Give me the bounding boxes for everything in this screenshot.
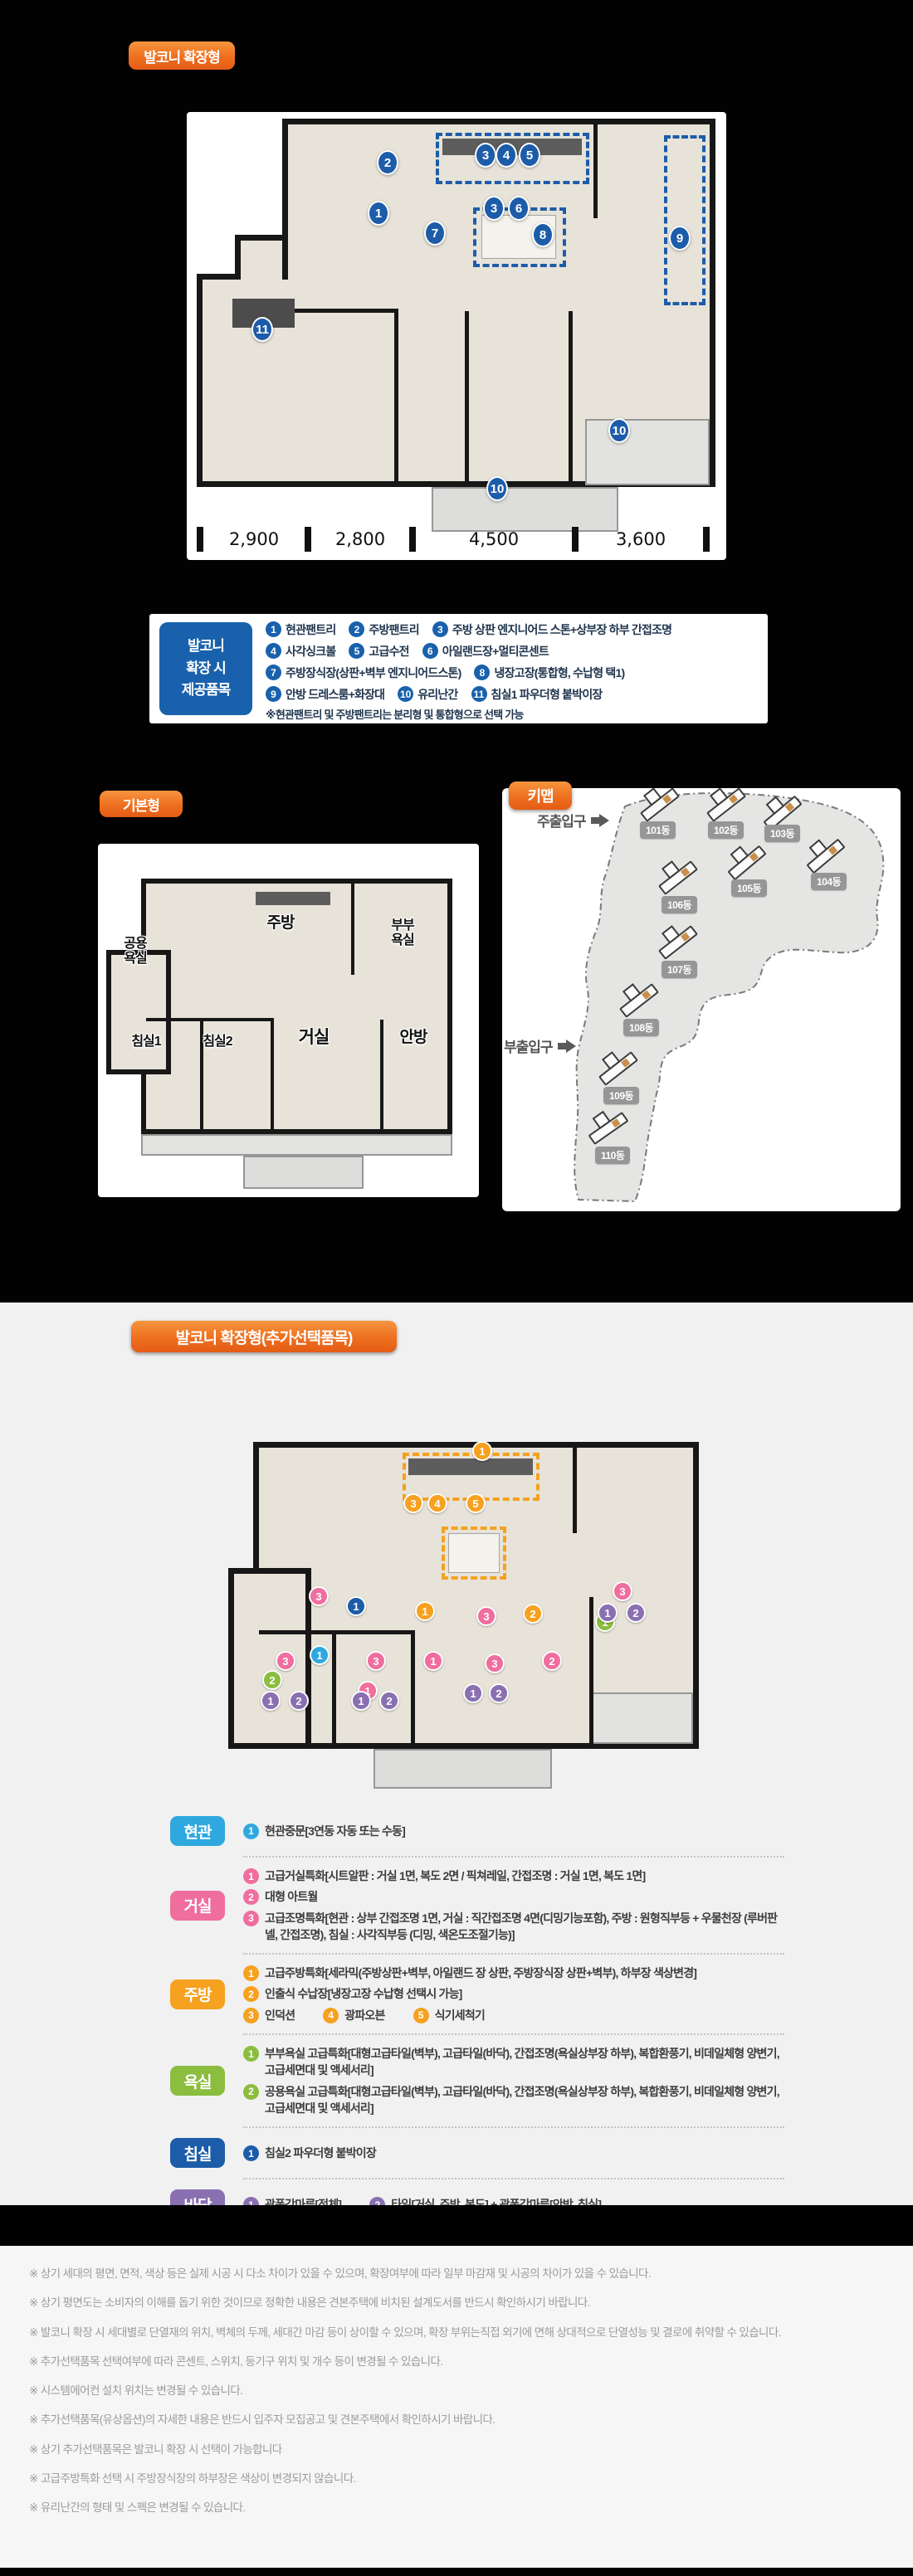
disclaimer-line: ※ 유리난간의 형태 및 스펙은 변경될 수 있습니다. (29, 2500, 888, 2516)
plan-marker-number: 2 (384, 156, 391, 170)
building-number: 108동 (629, 1022, 653, 1034)
wall (465, 311, 469, 487)
option-marker-floor: 1 (463, 1683, 483, 1703)
room-label-text: 공용 (113, 937, 158, 952)
plan-left-annex (228, 1568, 311, 1749)
options-legend: 현관 1현관중문[3연동 자동 또는 수동] 거실 1고급거실특화[시트알판 :… (170, 1810, 784, 2225)
dimension-tick (409, 527, 416, 552)
legend-category-badge: 현관 (170, 1816, 225, 1846)
provided-items-box: 발코니 확장 시 제공품목 1현관팬트리 2주방팬트리 3주방 상판 엔지니어드… (149, 614, 768, 723)
legend-separator (243, 2178, 784, 2179)
legend-separator (243, 1856, 784, 1858)
legend-item-row: 3인덕션 4광파오븐 5식기세척기 (243, 2007, 784, 2023)
legend-item: 2인출식 수납장[냉장고장 수납형 선택시 가능] (243, 1985, 784, 2002)
entrance-text: 부출입구 (504, 1035, 553, 1056)
wall (593, 119, 598, 218)
plan-marker-number: 10 (491, 482, 505, 496)
legend-group-kitchen: 주방 1고급주방특화[세라믹(주방상판+벽부, 아일랜드 장 상판, 주방장식장… (170, 1959, 784, 2029)
list-item: 3주방 상판 엔지니어드 스톤+상부장 하부 간접조명 (432, 621, 671, 638)
category-text: 현관 (184, 1820, 212, 1843)
plan-marker-number: 11 (256, 323, 269, 337)
legend-separator (243, 2033, 784, 2035)
marker-number: 4 (434, 1497, 440, 1510)
item-text: 부부욕실 고급특화[대형고급타일(벽부), 고급타일(바닥), 간접조명(욕실상… (265, 2045, 784, 2079)
list-item: 7주방장식장(상판+벽부 엔지니어드스톤) (266, 665, 461, 681)
provided-items-row: 1현관팬트리 2주방팬트리 3주방 상판 엔지니어드 스톤+상부장 하부 간접조… (266, 620, 764, 639)
brochure-page: 발코니 확장형 1 (0, 0, 913, 2576)
item-text: 침실1 파우더형 붙박이장 (491, 686, 603, 703)
balcony-utility (585, 419, 710, 485)
room-label-text: 침실1 (131, 1035, 160, 1049)
keymap-site-shape (502, 788, 901, 1211)
marker-number: 1 (479, 1445, 485, 1458)
provided-items-row: 9안방 드레스룸+화장대 10유리난간 11침실1 파우더형 붙박이장 (266, 684, 764, 704)
legend-item: 1부부욕실 고급특화[대형고급타일(벽부), 고급타일(바닥), 간접조명(욕실… (243, 2045, 784, 2079)
plan-marker-number: 5 (526, 149, 533, 163)
marker-number: 1 (353, 1600, 359, 1613)
item-number-badge: 1 (243, 2046, 259, 2062)
legend-category-badge: 욕실 (170, 2066, 225, 2096)
kitchen-counter (256, 892, 330, 905)
item-text: 냉장고장(통합형, 수납형 택1) (494, 665, 624, 681)
room-label-bedroom1: 침실1 (121, 1035, 171, 1049)
building-number: 102동 (714, 825, 738, 836)
item-text: 인출식 수납장[냉장고장 수납형 선택시 가능] (265, 1985, 462, 2002)
disclaimer-line: ※ 시스템에어컨 설치 위치는 변경될 수 있습니다. (29, 2383, 888, 2399)
option-marker-floor: 2 (289, 1691, 309, 1711)
option-marker-kitchen: 1 (415, 1601, 435, 1621)
footer-band (0, 2568, 913, 2576)
marker-number: 2 (295, 1695, 301, 1707)
building-number: 105동 (737, 883, 761, 894)
item-text: 고급주방특화[세라믹(주방상판+벽부, 아일랜드 장 상판, 주방장식장 상판+… (265, 1965, 696, 1981)
item-number-badge: 2 (243, 2084, 259, 2100)
marker-number: 2 (496, 1687, 501, 1700)
plan-marker: 3 (475, 143, 496, 168)
plan-marker: 10 (608, 418, 630, 443)
marker-number: 1 (267, 1695, 273, 1707)
sub-entrance-label: 부출입구 (504, 1035, 576, 1056)
balcony-utility (589, 1692, 693, 1744)
disclaimer-line: ※ 상기 세대의 평면, 면적, 색상 등은 실제 시공 시 다소 차이가 있을… (29, 2266, 888, 2282)
label-line: 발코니 (188, 635, 224, 657)
plan-marker: 6 (508, 196, 530, 221)
marker-number: 3 (282, 1655, 288, 1668)
basic-title: 기본형 (123, 794, 159, 815)
item-number-badge: 4 (266, 643, 281, 659)
building-number: 103동 (770, 828, 794, 840)
building-label: 108동 (623, 1019, 659, 1036)
list-item: 6아일랜드장+멀티콘센트 (422, 643, 549, 660)
option-marker-living: 3 (276, 1651, 295, 1671)
dimension-value: 2,800 (311, 529, 409, 549)
wall (146, 1018, 274, 1021)
marker-number: 3 (619, 1585, 625, 1598)
wall (271, 1020, 274, 1134)
legend-item: 3고급조명특화[현관 : 상부 간접조명 1면, 거실 : 직간접조명 4면(디… (243, 1910, 784, 1944)
legend-item: 5식기세척기 (413, 2007, 485, 2023)
keymap-box: 키맵 주출입구 부출입구 101동 102동 103동 104동 105동 10… (502, 788, 901, 1211)
plan-marker-number: 8 (539, 228, 546, 242)
plan-marker: 11 (251, 317, 273, 342)
dimension-tick (572, 527, 579, 552)
list-item: 10유리난간 (398, 686, 457, 703)
item-number-badge: 7 (266, 665, 281, 680)
list-item: 4사각싱크볼 (266, 643, 335, 660)
option-marker-kitchen: 1 (472, 1441, 492, 1461)
floorplan-options: 1 3 4 5 1 2 3 3 1 3 3 3 1 3 2 1 2 1 1 2 … (224, 1410, 705, 1792)
marker-number: 3 (483, 1610, 489, 1623)
plan-marker: 5 (519, 143, 540, 168)
wall (259, 1630, 415, 1634)
list-item: 11침실1 파우더형 붙박이장 (471, 686, 603, 703)
provided-items-list: 1현관팬트리 2주방팬트리 3주방 상판 엔지니어드 스톤+상부장 하부 간접조… (266, 620, 764, 722)
building-number: 104동 (817, 876, 841, 888)
option-marker-floor: 1 (351, 1691, 371, 1711)
plan-marker: 10 (486, 476, 508, 501)
room-label-master-bedroom: 안방 (390, 1030, 437, 1047)
balcony-living (373, 1749, 552, 1789)
legend-group-entrance: 현관 1현관중문[3연동 자동 또는 수동] (170, 1810, 784, 1852)
item-number-badge: 5 (413, 2008, 429, 2023)
wall (573, 1442, 577, 1533)
item-number-badge: 3 (432, 621, 448, 637)
marker-number: 2 (530, 1608, 535, 1620)
wall (351, 884, 354, 975)
building-number: 106동 (667, 899, 691, 911)
item-number-badge: 1 (266, 621, 281, 637)
plan-marker-number: 7 (432, 226, 438, 241)
category-text: 거실 (184, 1894, 212, 1916)
building-label: 103동 (764, 825, 800, 842)
floorplan-basic: 주방 부부 욕실 공용 욕실 침실1 침실2 거실 안방 (98, 844, 479, 1197)
item-text: 광파오븐 (344, 2007, 384, 2023)
plan-marker: 4 (496, 143, 517, 168)
marker-number: 2 (549, 1655, 554, 1668)
item-number-badge: 1 (243, 1965, 259, 1981)
marker-number: 1 (430, 1655, 436, 1668)
item-number-badge: 8 (474, 665, 490, 680)
dimension-value: 2,900 (203, 529, 305, 549)
plan-marker: 1 (368, 201, 389, 226)
legend-separator (243, 1953, 784, 1955)
item-number-badge: 2 (243, 1889, 259, 1905)
section2-title: 발코니 확장형(추가선택품목) (176, 1326, 353, 1348)
legend-item: 2대형 아트월 (243, 1888, 784, 1905)
option-marker-floor: 2 (379, 1691, 399, 1711)
provided-items-row: 4사각싱크볼 5고급수전 6아일랜드장+멀티콘센트 (266, 641, 764, 660)
option-marker-kitchen: 4 (427, 1493, 447, 1513)
main-entrance-label: 주출입구 (537, 810, 609, 830)
room-label-kitchen: 주방 (256, 915, 305, 933)
dimension-value: 4,500 (416, 529, 572, 549)
option-marker-living: 3 (309, 1586, 329, 1606)
room-label-text: 욕실 (380, 933, 425, 948)
room-label-common-bath: 공용 욕실 (113, 937, 158, 966)
item-number-badge: 2 (243, 1986, 259, 2002)
balcony-living (243, 1156, 364, 1189)
marker-number: 2 (386, 1695, 392, 1707)
wall (394, 311, 398, 487)
plan-marker-number: 6 (515, 202, 522, 216)
item-text: 침실2 파우더형 붙박이장 (265, 2145, 376, 2161)
item-text: 주방팬트리 (369, 621, 418, 638)
option-marker-floor: 2 (626, 1603, 646, 1623)
option-marker-floor: 1 (261, 1691, 281, 1711)
plan-marker-number: 10 (613, 424, 627, 438)
legend-group-bath: 욕실 1부부욕실 고급특화[대형고급타일(벽부), 고급타일(바닥), 간접조명… (170, 2039, 784, 2122)
item-text: 주방 상판 엔지니어드 스톤+상부장 하부 간접조명 (452, 621, 671, 638)
legend-item: 4광파오븐 (323, 2007, 384, 2023)
plan-marker: 2 (377, 150, 398, 175)
category-text: 주방 (184, 1983, 212, 2005)
section-additional-options: 발코니 확장형(추가선택품목) 1 3 4 5 1 2 3 3 (0, 1303, 913, 2205)
option-marker-kitchen: 5 (466, 1493, 486, 1513)
legend-separator (243, 2126, 784, 2128)
marker-number: 2 (632, 1607, 638, 1619)
wall (332, 1633, 336, 1749)
divider-band (0, 2205, 913, 2246)
option-marker-kitchen: 3 (403, 1493, 423, 1513)
item-text: 식기세척기 (435, 2007, 485, 2023)
section-balcony-extended: 발코니 확장형 1 (0, 0, 913, 1303)
marker-number: 1 (358, 1695, 364, 1707)
legend-group-living: 거실 1고급거실특화[시트알판 : 거실 1면, 복도 2면 / 픽쳐레일, 간… (170, 1862, 784, 1949)
item-number-badge: 1 (243, 1824, 259, 1839)
disclaimer-line: ※ 상기 평면도는 소비자의 이해를 돕기 위한 것이므로 정확한 내용은 견본… (29, 2295, 888, 2311)
keymap-title-badge: 키맵 (509, 782, 572, 810)
section-title: 발코니 확장형 (144, 46, 220, 66)
list-item: 8냉장고장(통합형, 수납형 택1) (474, 665, 624, 681)
option-marker-kitchen: 2 (523, 1604, 543, 1624)
legend-item: 1침실2 파우더형 붙박이장 (243, 2145, 784, 2161)
plan-marker: 7 (424, 221, 446, 246)
extension-zone-right (664, 135, 705, 305)
wall-patch (241, 274, 282, 285)
list-item: 9안방 드레스룸+화장대 (266, 686, 384, 703)
option-zone-island (442, 1527, 506, 1580)
item-text: 대형 아트월 (265, 1888, 318, 1905)
item-text: 공용욕실 고급특화[대형고급타일(벽부), 고급타일(바닥), 간접조명(욕실상… (265, 2083, 784, 2117)
option-marker-entrance: 1 (310, 1645, 330, 1665)
legend-group-bedroom: 침실 1침실2 파우더형 붙박이장 (170, 2132, 784, 2174)
option-marker-living: 3 (366, 1651, 386, 1671)
plan-marker-number: 4 (503, 149, 510, 163)
disclaimer-line: ※ 추가선택품목(유상옵션)의 자세한 내용은 반드시 입주자 모집공고 및 견… (29, 2412, 888, 2428)
wall (380, 1020, 383, 1134)
provided-items-row: 7주방장식장(상판+벽부 엔지니어드스톤) 8냉장고장(통합형, 수납형 택1) (266, 663, 764, 682)
item-number-badge: 3 (243, 2008, 259, 2023)
room-label-text: 거실 (299, 1028, 330, 1047)
legend-item: 1고급주방특화[세라믹(주방상판+벽부, 아일랜드 장 상판, 주방장식장 상판… (243, 1965, 784, 1981)
room-label-text: 욕실 (113, 952, 158, 967)
basic-title-badge: 기본형 (100, 791, 183, 817)
disclaimer-line: ※ 상기 추가선택품목은 발코니 확장 시 선택이 가능합니다 (29, 2442, 888, 2458)
item-number-badge: 5 (349, 643, 364, 659)
item-text: 고급거실특화[시트알판 : 거실 1면, 복도 2면 / 픽쳐레일, 간접조명 … (265, 1867, 645, 1884)
building-label: 104동 (811, 873, 847, 890)
plan-marker-number: 3 (482, 149, 489, 163)
balcony-strip (141, 1134, 452, 1156)
building-label: 107동 (662, 961, 697, 978)
building-label: 105동 (731, 879, 767, 897)
plan-marker: 3 (483, 196, 505, 221)
item-text: 현관중문[3연동 자동 또는 수동] (265, 1823, 405, 1839)
wall (411, 1633, 415, 1749)
category-text: 침실 (184, 2142, 212, 2165)
building-number: 109동 (609, 1090, 633, 1102)
building-label: 102동 (708, 821, 744, 839)
item-text: 유리난간 (417, 686, 457, 703)
plan-left-annex (106, 950, 171, 1074)
plan-marker-number: 1 (375, 207, 382, 221)
entrance-text: 주출입구 (537, 810, 586, 830)
legend-category-badge: 거실 (170, 1891, 225, 1921)
marker-number: 3 (315, 1590, 321, 1603)
plan-marker: 9 (669, 226, 691, 251)
wall (569, 311, 573, 487)
building-label: 110동 (595, 1147, 630, 1164)
dimension-row: 2,900 2,800 4,500 3,600 (197, 527, 710, 552)
room-label-text: 침실2 (203, 1035, 232, 1049)
wall-patch (141, 955, 151, 1069)
item-text: 주방장식장(상판+벽부 엔지니어드스톤) (286, 665, 461, 681)
option-marker-living: 1 (423, 1651, 443, 1671)
plan-marker-number: 9 (676, 231, 683, 246)
list-item: 5고급수전 (349, 643, 408, 660)
marker-number: 3 (373, 1655, 378, 1668)
disclaimer-line: ※ 고급주방특화 선택 시 주방장식장의 하부장은 색상이 변경되지 않습니다. (29, 2471, 888, 2487)
dimension-tick (305, 527, 311, 552)
item-text: 사각싱크볼 (286, 643, 335, 660)
building-label: 109동 (603, 1087, 639, 1104)
disclaimer-list: ※ 상기 세대의 평면, 면적, 색상 등은 실제 시공 시 다소 차이가 있을… (29, 2266, 888, 2529)
marker-number: 3 (491, 1658, 497, 1670)
room-label-text: 부부 (380, 918, 425, 933)
building-number: 110동 (601, 1150, 624, 1161)
room-label-text: 주방 (267, 914, 295, 932)
marker-number: 1 (470, 1687, 476, 1700)
legend-category-badge: 침실 (170, 2138, 225, 2168)
marker-number: 2 (269, 1674, 275, 1687)
item-text: 아일랜드장+멀티콘센트 (442, 643, 549, 660)
item-number-badge: 11 (471, 686, 487, 702)
section-disclaimers: ※ 상기 세대의 평면, 면적, 색상 등은 실제 시공 시 다소 차이가 있을… (0, 2246, 913, 2568)
wall (286, 309, 398, 313)
item-number-badge: 4 (323, 2008, 339, 2023)
wall (589, 1597, 593, 1749)
room-label-living: 거실 (290, 1028, 337, 1047)
item-number-badge: 1 (243, 2145, 259, 2161)
marker-number: 5 (472, 1497, 478, 1510)
item-text: 현관팬트리 (286, 621, 335, 638)
room-label-master-bath: 부부 욕실 (380, 918, 425, 947)
label-line: 제공품목 (182, 679, 231, 701)
wall-patch (253, 1574, 265, 1743)
plan-marker: 8 (532, 222, 554, 247)
label-line: 확장 시 (186, 658, 226, 679)
item-number-badge: 1 (243, 1868, 259, 1884)
option-marker-living: 3 (485, 1653, 505, 1673)
legend-item: 1고급거실특화[시트알판 : 거실 1면, 복도 2면 / 픽쳐레일, 간접조명… (243, 1867, 784, 1884)
provided-items-label: 발코니 확장 시 제공품목 (159, 622, 252, 715)
list-item: 1현관팬트리 (266, 621, 335, 638)
legend-item: 2공용욕실 고급특화[대형고급타일(벽부), 고급타일(바닥), 간접조명(욕실… (243, 2083, 784, 2117)
option-marker-floor: 2 (489, 1683, 509, 1703)
option-marker-living: 2 (542, 1651, 562, 1671)
legend-item: 1현관중문[3연동 자동 또는 수동] (243, 1823, 784, 1839)
option-marker-living: 3 (476, 1606, 496, 1626)
dimension-tick (197, 527, 203, 552)
marker-number: 1 (604, 1607, 610, 1619)
building-label: 106동 (662, 896, 697, 913)
option-marker-bath: 2 (262, 1670, 282, 1690)
marker-number: 3 (410, 1497, 416, 1510)
item-number-badge: 6 (422, 643, 438, 659)
room-label-bedroom2: 침실2 (193, 1035, 242, 1049)
section2-title-badge: 발코니 확장형(추가선택품목) (131, 1321, 397, 1352)
option-marker-living: 3 (613, 1581, 632, 1601)
item-number-badge: 10 (398, 686, 413, 702)
dimension-tick (703, 527, 710, 552)
plan-entry-step (235, 235, 288, 280)
building-number: 107동 (667, 964, 691, 976)
item-number-badge: 9 (266, 686, 281, 702)
option-marker-bedroom: 1 (346, 1596, 366, 1616)
item-text: 고급수전 (369, 643, 408, 660)
section-title-badge: 발코니 확장형 (129, 41, 235, 70)
dimension-value: 3,600 (579, 529, 703, 549)
legend-category-badge: 주방 (170, 1979, 225, 2009)
disclaimer-line: ※ 발코니 확장 시 세대별로 단열재의 위치, 벽체의 두께, 세대간 마감 … (29, 2325, 888, 2341)
marker-number: 1 (316, 1649, 322, 1662)
arrow-right-icon (591, 814, 609, 827)
item-text: 안방 드레스룸+화장대 (286, 686, 384, 703)
legend-item: 3인덕션 (243, 2007, 295, 2023)
option-marker-floor: 1 (598, 1603, 618, 1623)
floorplan-extended: 1 2 3 4 5 3 6 7 8 9 10 10 11 2,900 2,800… (187, 112, 726, 560)
plan-marker-number: 3 (491, 202, 497, 216)
room-label-text: 안방 (400, 1029, 427, 1046)
arrow-right-icon (558, 1040, 576, 1053)
item-number-badge: 3 (243, 1911, 259, 1926)
category-text: 욕실 (184, 2070, 212, 2092)
provided-items-note: ※현관팬트리 및 주방팬트리는 분리형 및 통합형으로 선택 가능 (266, 706, 764, 722)
disclaimer-line: ※ 추가선택품목 선택여부에 따라 콘센트, 스위치, 등기구 위치 및 개수 … (29, 2354, 888, 2370)
item-text: 인덕션 (265, 2007, 295, 2023)
item-number-badge: 2 (349, 621, 364, 637)
building-label: 101동 (640, 821, 676, 839)
list-item: 2주방팬트리 (349, 621, 418, 638)
keymap-title: 키맵 (527, 785, 553, 806)
marker-number: 1 (422, 1605, 427, 1618)
building-number: 101동 (646, 825, 670, 836)
item-text: 고급조명특화[현관 : 상부 간접조명 1면, 거실 : 직간접조명 4면(디밍… (265, 1910, 784, 1944)
balcony-living (432, 487, 618, 532)
